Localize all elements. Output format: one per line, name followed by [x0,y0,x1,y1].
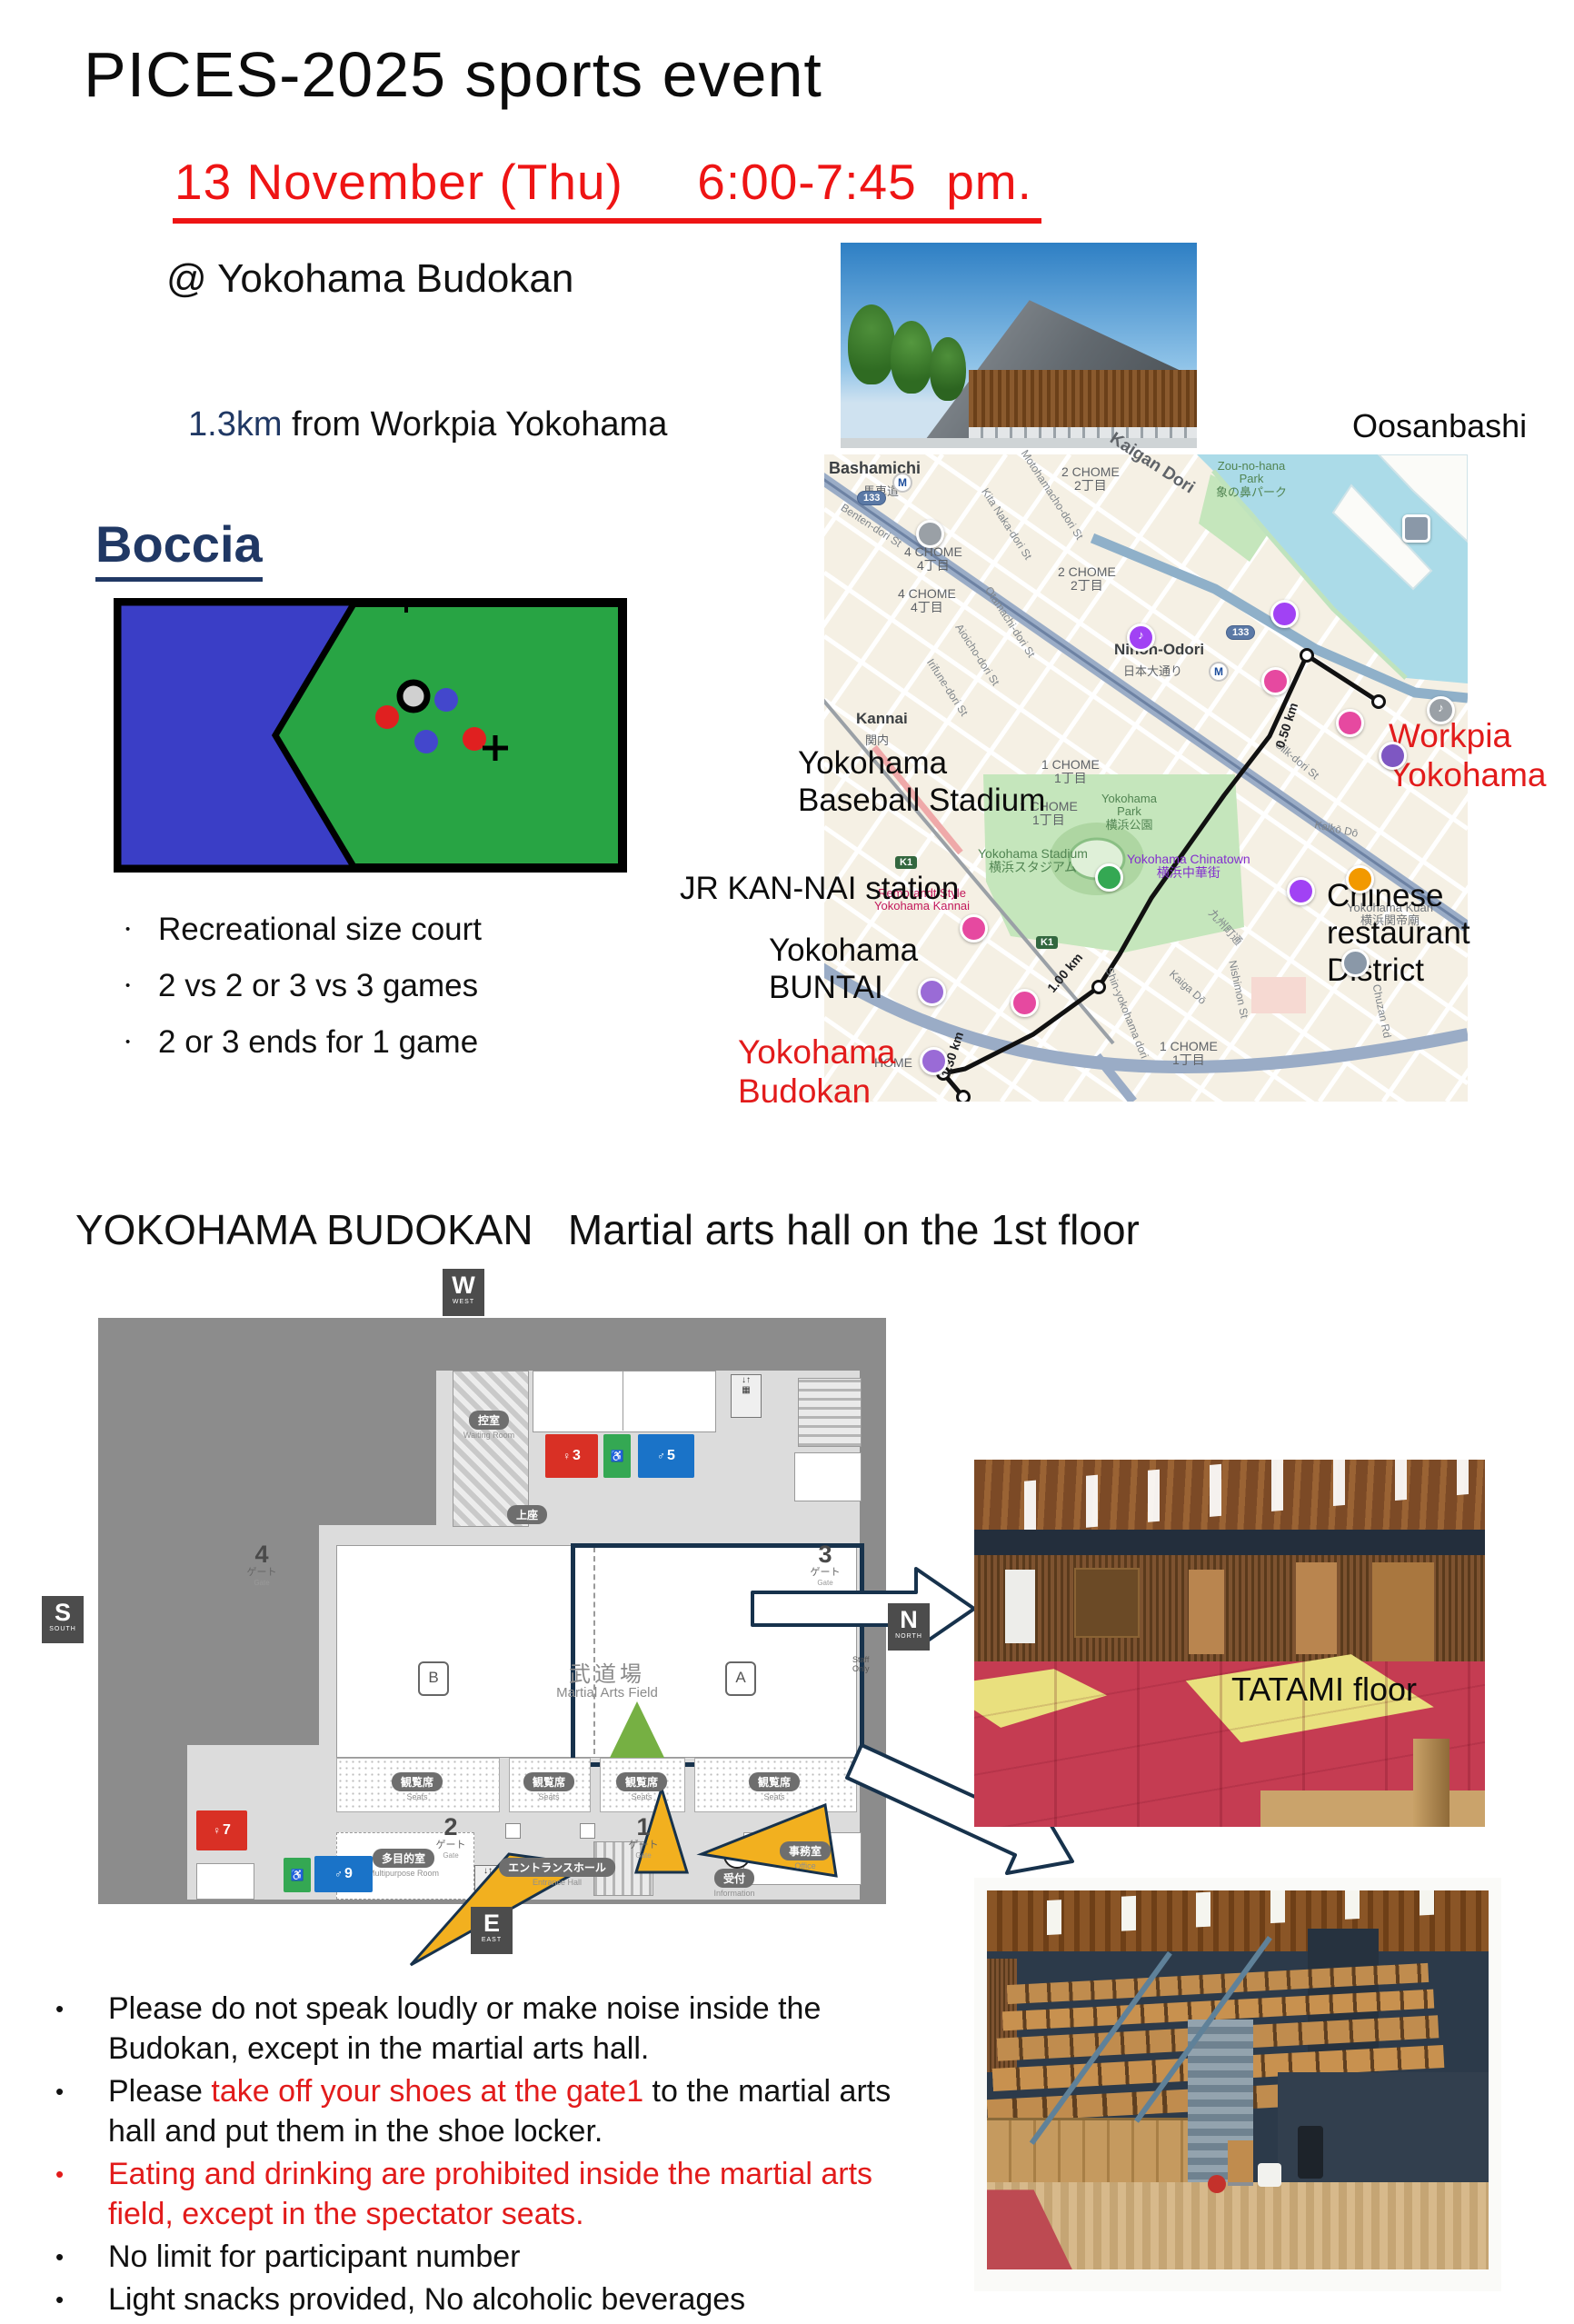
bullet-dot: • [125,911,158,949]
page-title: PICES-2025 sports event [84,38,822,111]
map-overlay-label: Oosanbashi [1352,407,1527,445]
boccia-bullet-text: 2 or 3 ends for 1 game [158,1023,478,1062]
tree [848,304,895,384]
building-ground [841,438,1197,448]
stairs-icon [593,1841,653,1896]
rule-item: •No limit for participant number [50,2237,986,2277]
rule-text: Please take off your shoes at the gate1 … [108,2071,891,2151]
bullet-dot: • [50,2154,108,2234]
boccia-heading: Boccia [95,514,263,582]
compass-east: EEAST [471,1907,513,1954]
hall-label-en: Martial Arts Field [556,1685,658,1701]
rule-text: Eating and drinking are prohibited insid… [108,2154,872,2234]
elevator-icon: ↓↑ [474,1865,502,1901]
red-ball [375,705,399,729]
bullet-dot: • [125,1023,158,1062]
rule-item: •Light snacks provided, No alcoholic bev… [50,2279,986,2319]
compass-letter: E [471,1907,513,1940]
rule-item: •Eating and drinking are prohibited insi… [50,2154,986,2234]
building-wood-facade [969,370,1197,432]
distance-rest: from Workpia Yokohama [282,405,667,444]
event-date: 13 November (Thu) 6:00-7:45 pm. [173,153,1041,224]
section-heading-left: YOKOHAMA BUDOKAN [75,1206,533,1253]
section-heading: YOKOHAMA BUDOKAN Martial arts hall on th… [75,1205,1140,1254]
compass-word: WEST [443,1299,484,1305]
blue-ball [434,688,458,712]
compass-west: WWEST [443,1269,484,1316]
staff-only-label: Staff Only [852,1656,870,1674]
spectator-seats-block [509,1758,591,1812]
rule-item: •Please take off your shoes at the gate1… [50,2071,986,2151]
multipurpose-room [336,1832,474,1900]
budokan-building-photo [841,243,1197,448]
zone-b-label: B [418,1661,449,1696]
jack-ball [400,683,427,710]
compass-letter: S [42,1596,84,1629]
spectator-seats-block [694,1758,857,1812]
information-icon: i [723,1841,751,1869]
section-heading-right: Martial arts hall on the 1st floor [568,1206,1140,1253]
spectator-seats-block [600,1758,685,1812]
bullet-dot: • [50,1989,108,2069]
compass-word: NORTH [888,1633,930,1640]
venue-line: @ Yokohama Budokan [166,256,573,302]
slide-page: PICES-2025 sports event 13 November (Thu… [0,0,1574,2324]
rule-text-segment: Please [108,2074,211,2109]
bullet-dot: • [125,967,158,1005]
tree [891,321,932,394]
boccia-bullet-item: •2 or 3 ends for 1 game [125,1023,482,1062]
first-aid-icon: + [845,1591,872,1618]
route-map [824,454,1468,1102]
compass-letter: W [443,1269,484,1302]
map-geometry [824,454,1468,1102]
distance-value: 1.3km [188,405,282,444]
bullet-dot: • [50,2237,108,2277]
rule-text-segment: No limit for participant number [108,2239,521,2274]
waiting-room [453,1371,529,1527]
elevator-icon: ↓↑▦ [731,1374,762,1418]
blue-ball [414,730,438,753]
stairs-icon [798,1378,862,1447]
boccia-bullet-list: •Recreational size court•2 vs 2 or 3 vs … [125,911,482,1080]
rule-item: •Please do not speak loudly or make nois… [50,1989,986,2069]
zone-a-label: A [725,1661,756,1696]
compass-word: SOUTH [42,1626,84,1632]
bullet-dot: • [50,2279,108,2319]
boccia-bullet-text: Recreational size court [158,911,482,949]
spectator-seats-block [336,1758,500,1812]
compass-letter: N [888,1603,930,1636]
floor-plan: ↓↑▦ ↓↑ 武道場 Martial Arts Field B A Staff … [98,1318,886,1904]
tree [930,337,966,401]
rule-text: Please do not speak loudly or make noise… [108,1989,821,2069]
rule-text: No limit for participant number [108,2237,521,2277]
rules-list: •Please do not speak loudly or make nois… [50,1989,986,2322]
bullet-dot: • [50,2071,108,2151]
compass-south: SSOUTH [42,1596,84,1643]
compass-north: NNORTH [888,1603,930,1651]
distance-note: 1.3km from Workpia Yokohama [188,405,667,444]
boccia-bullet-item: •Recreational size court [125,911,482,949]
rule-text-segment: Light snacks provided, No alcoholic beve… [108,2282,745,2317]
hall-label-jp: 武道場 [569,1656,645,1688]
boccia-court [114,598,627,877]
compass-word: EAST [471,1937,513,1943]
shower-rooms [533,1371,716,1432]
rule-text-segment: take off your shoes at the gate1 [211,2074,643,2109]
rule-text-segment: Eating and drinking are prohibited insid… [108,2157,872,2231]
spectator-seats-photo [974,1878,1501,2291]
office-room [743,1832,862,1885]
hall-highlight-outline [571,1543,864,1767]
tatami-caption: TATAMI floor [1231,1671,1417,1709]
tatami-hall-photo [974,1460,1485,1827]
rule-text: Light snacks provided, No alcoholic beve… [108,2279,745,2319]
rule-text-segment: Please do not speak loudly or make noise… [108,1991,821,2066]
boccia-bullet-item: •2 vs 2 or 3 vs 3 games [125,967,482,1005]
boccia-bullet-text: 2 vs 2 or 3 vs 3 games [158,967,478,1005]
